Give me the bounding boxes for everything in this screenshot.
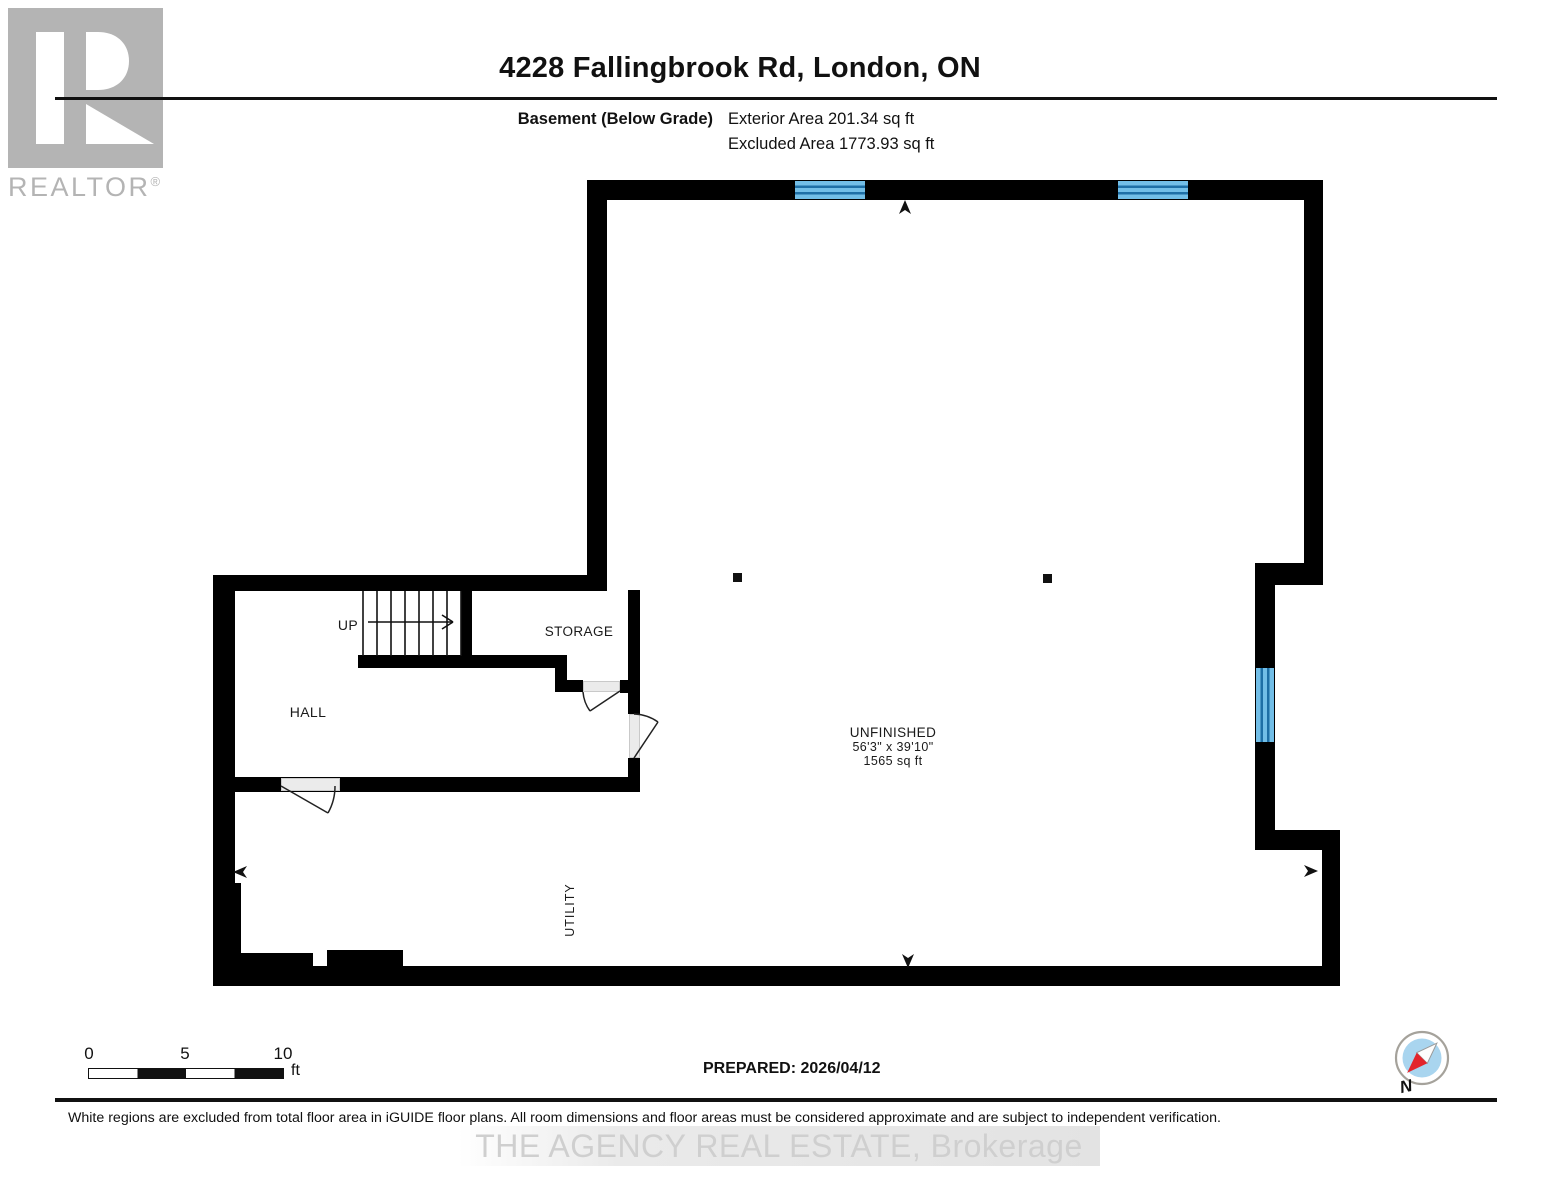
floorplan-page: REALTOR® 4228 Fallingbrook Rd, London, O…: [0, 0, 1553, 1200]
extent-arrow-left-icon: [233, 866, 247, 878]
stairs-icon: [363, 591, 461, 656]
room-label-hall: HALL: [282, 704, 334, 720]
footer-divider: [55, 1098, 1497, 1102]
scale-tick-5: 5: [175, 1044, 195, 1064]
room-label-unfinished: UNFINISHED 56'3" x 39'10" 1565 sq ft: [813, 725, 973, 768]
brokerage-watermark: THE AGENCY REAL ESTATE, Brokerage: [458, 1126, 1100, 1166]
plan-linework: [0, 0, 1553, 1200]
extent-arrow-up-icon: [899, 200, 911, 214]
scale-tick-10: 10: [268, 1044, 298, 1064]
prepared-date: PREPARED: 2026/04/12: [703, 1060, 881, 1078]
scale-bar-icon: [88, 1068, 284, 1079]
extent-arrow-down-icon: [902, 954, 914, 968]
disclaimer-text: White regions are excluded from total fl…: [68, 1110, 1221, 1126]
unfinished-area: 1565 sq ft: [813, 754, 973, 768]
unfinished-name: UNFINISHED: [813, 725, 973, 740]
room-label-storage: STORAGE: [543, 624, 615, 639]
door-swing-icon: [634, 714, 658, 758]
door-swing-icon: [583, 691, 620, 711]
scale-tick-0: 0: [79, 1044, 99, 1064]
unfinished-dimensions: 56'3" x 39'10": [813, 740, 973, 754]
stairs-up-label: UP: [326, 617, 370, 633]
room-label-utility: UTILITY: [563, 880, 577, 940]
scale-unit-label: ft: [291, 1062, 300, 1080]
door-swing-icon: [281, 786, 335, 813]
extent-arrow-right-icon: [1304, 865, 1318, 877]
